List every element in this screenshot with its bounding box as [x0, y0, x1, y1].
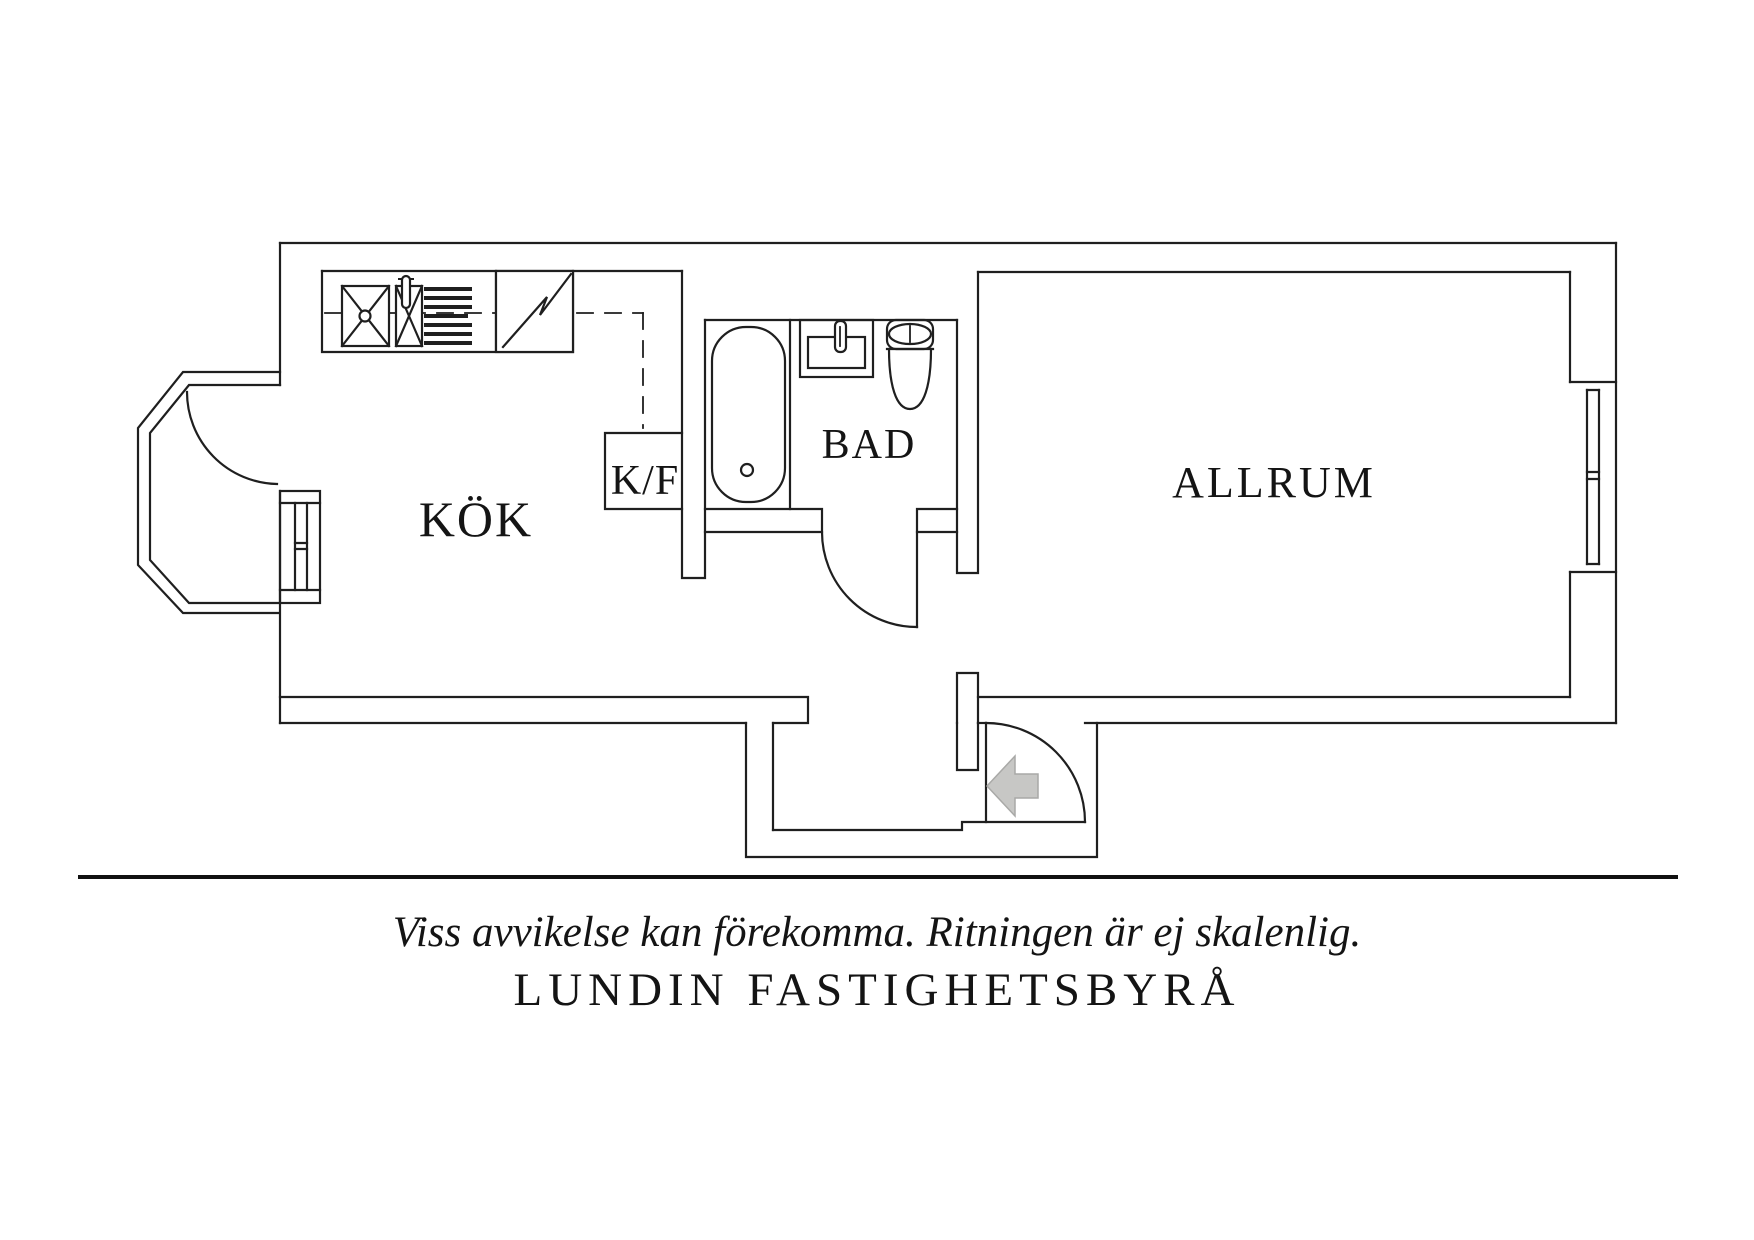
wall-entry-stub	[957, 723, 978, 770]
drainboard-lines	[426, 289, 470, 343]
toilet-icon	[887, 320, 933, 409]
east-window-caps	[1587, 390, 1599, 564]
footer: Viss avvikelse kan förekomma. Ritningen …	[0, 908, 1754, 1017]
room-label-kf: K/F	[611, 458, 679, 504]
east-window-transom	[1587, 472, 1599, 479]
west-window-frame	[280, 491, 320, 603]
inner-walls	[280, 271, 1570, 830]
east-window	[1570, 382, 1616, 572]
kitchen-sink-icon	[396, 276, 422, 346]
company-name: LUNDIN FASTIGHETSBYRÅ	[0, 963, 1754, 1017]
drainboard-icon	[426, 289, 470, 343]
east-window-sills	[1570, 382, 1616, 572]
wall-hall-allrum-upper	[957, 272, 978, 573]
west-window-transom	[295, 543, 307, 549]
vestibule-inner-bottom	[773, 822, 1085, 830]
room-labels: KÖK K/F BAD ALLRUM	[419, 422, 1376, 547]
west-window-glazing	[295, 503, 307, 590]
room-label-bad: BAD	[822, 422, 917, 468]
balcony	[138, 372, 280, 613]
balcony-inner	[150, 385, 280, 603]
outer-walls	[280, 243, 1616, 857]
entry-arrow-icon	[987, 756, 1038, 816]
floorplan-page: KÖK K/F BAD ALLRUM Viss avvikelse kan fö…	[0, 0, 1754, 1240]
hob-knob	[360, 311, 371, 322]
kitchen-counter	[322, 271, 643, 428]
wall-kitchen-bath	[682, 271, 705, 578]
disclaimer-text: Viss avvikelse kan förekomma. Ritningen …	[0, 908, 1754, 957]
west-window	[280, 491, 320, 603]
toilet-bowl	[889, 349, 931, 409]
bathroom-fixtures	[712, 320, 933, 509]
sink-faucet	[402, 276, 410, 308]
balcony-outer	[138, 372, 280, 613]
divider-line	[78, 875, 1678, 879]
bath-door-swing	[822, 532, 917, 627]
room-label-allrum: ALLRUM	[1172, 458, 1376, 507]
balcony-door-swing	[187, 392, 277, 484]
wall-hall-allrum-pillar	[957, 673, 978, 723]
room-label-kok: KÖK	[419, 491, 533, 547]
washbasin-icon	[800, 320, 873, 377]
worktop-icon	[496, 271, 573, 352]
wall-bath-south-east	[917, 509, 957, 532]
bathtub-drain	[741, 464, 753, 476]
wall-south-inner-west	[280, 697, 808, 723]
east-window-glazing	[1587, 390, 1599, 564]
west-window-sills	[280, 503, 320, 590]
floor-plan-canvas: KÖK K/F BAD ALLRUM	[0, 0, 1754, 1240]
doors	[187, 392, 1085, 822]
wall-bath-south-west	[705, 509, 822, 532]
hob-icon	[342, 286, 389, 346]
